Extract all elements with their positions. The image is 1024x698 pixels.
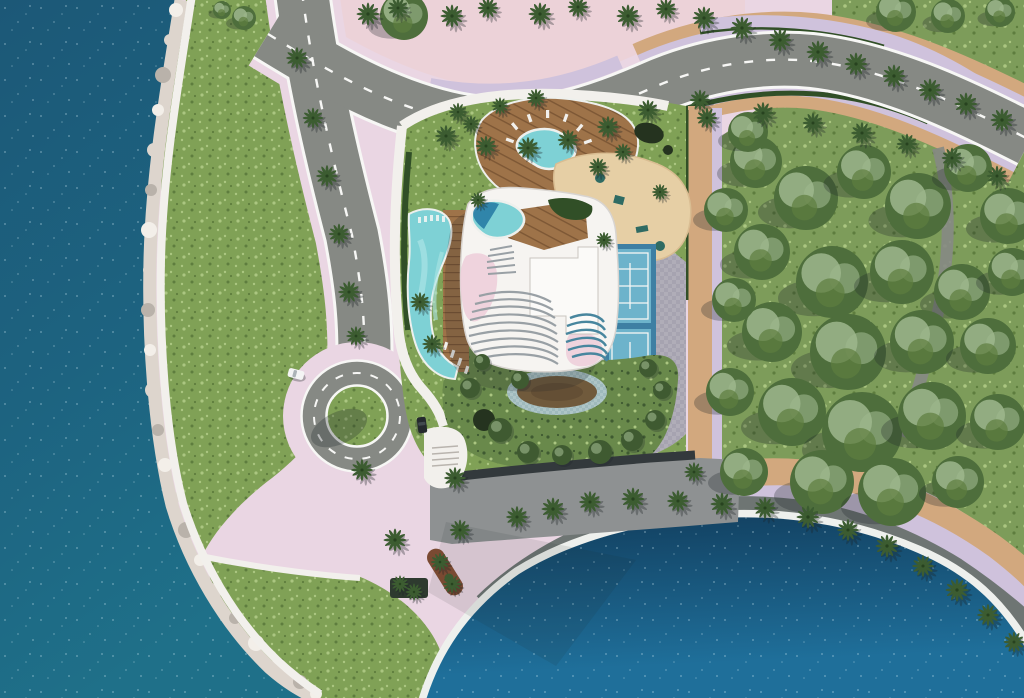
rock — [152, 424, 164, 436]
rock — [147, 143, 161, 157]
rock — [141, 303, 155, 317]
rock — [144, 344, 156, 356]
rock — [141, 222, 157, 238]
deck-pond-small — [663, 145, 673, 155]
tower-roof — [460, 188, 618, 372]
site-plan-rendering — [0, 0, 1024, 698]
rock — [145, 382, 161, 398]
rock — [155, 67, 171, 83]
rock — [169, 3, 183, 17]
rock — [164, 34, 176, 46]
aerial-site-plan — [0, 0, 1024, 698]
east-walkway — [686, 106, 717, 474]
rock — [143, 264, 155, 276]
rock — [145, 184, 157, 196]
rock — [152, 104, 164, 116]
rock — [158, 458, 172, 472]
